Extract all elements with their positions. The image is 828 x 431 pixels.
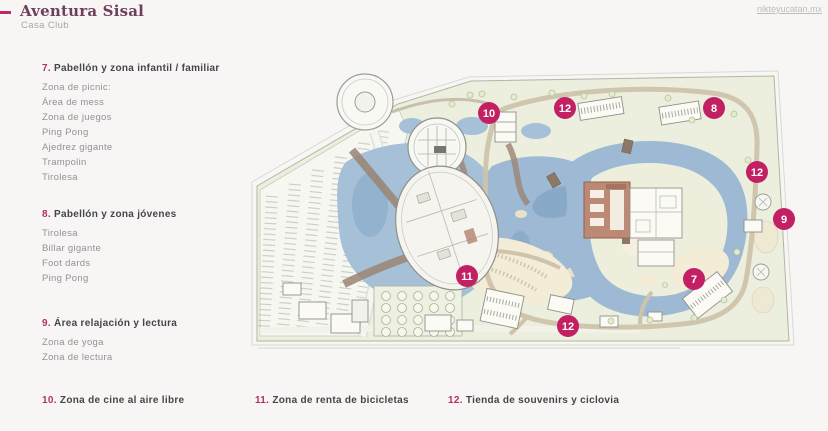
legend-item: Área de mess — [42, 95, 247, 110]
page-subtitle: Casa Club — [21, 20, 69, 31]
svg-text:11: 11 — [461, 271, 473, 283]
map-badge-12-bottom: 12 — [557, 315, 579, 337]
map-badge-12-top: 12 — [554, 97, 576, 119]
legend-item: Zona de lectura — [42, 350, 247, 365]
legend-item: Zona de juegos — [42, 110, 247, 125]
legend-heading: 7. Pabellón y zona infantil / familiar — [42, 63, 247, 74]
legend-heading: 9. Área relajación y lectura — [42, 318, 247, 329]
legend-section-10: 10. Zona de cine al aire libre — [42, 395, 184, 406]
page-title: Aventura Sisal — [20, 2, 144, 20]
legend-item: Ajedrez gigante — [42, 140, 247, 155]
legend-title: Área relajación y lectura — [54, 318, 177, 329]
website-link[interactable]: nikteyucatan.mx — [757, 4, 822, 14]
map-badge-10: 10 — [478, 102, 500, 124]
legend-number: 8. — [42, 209, 51, 220]
svg-text:8: 8 — [711, 103, 717, 115]
legend-number: 7. — [42, 63, 51, 74]
legend-section-7: 7. Pabellón y zona infantil / familiar Z… — [42, 63, 247, 185]
map-badge-11: 11 — [456, 265, 478, 287]
legend-number: 11. — [255, 395, 269, 406]
legend-title: Tienda de souvenirs y ciclovia — [466, 395, 619, 406]
map-badge-8: 8 — [703, 97, 725, 119]
legend-section-11: 11. Zona de renta de bicicletas — [255, 395, 409, 406]
svg-text:10: 10 — [483, 108, 495, 120]
legend-section-9: 9. Área relajación y lectura Zona de yog… — [42, 318, 247, 365]
legend-item: Ping Pong — [42, 271, 247, 286]
legend-section-8: 8. Pabellón y zona jóvenes Tirolesa Bill… — [42, 209, 247, 286]
legend-number: 10. — [42, 395, 57, 406]
legend-item: Zona de picnic: — [42, 80, 247, 95]
legend-item: Tirolesa — [42, 170, 247, 185]
svg-text:12: 12 — [559, 103, 571, 115]
legend-number: 12. — [448, 395, 463, 406]
map-badge-7: 7 — [683, 268, 705, 290]
legend-item: Trampolin — [42, 155, 247, 170]
legend-title: Zona de renta de bicicletas — [272, 395, 408, 406]
roundabout — [337, 74, 393, 130]
legend-heading: 8. Pabellón y zona jóvenes — [42, 209, 247, 220]
svg-text:7: 7 — [691, 274, 697, 286]
legend-item: Tirolesa — [42, 226, 247, 241]
page: Aventura Sisal Casa Club nikteyucatan.mx… — [0, 0, 828, 431]
legend-title: Pabellón y zona jóvenes — [54, 209, 177, 220]
map-badge-9: 9 — [773, 208, 795, 230]
legend-number: 9. — [42, 318, 51, 329]
legend-title: Zona de cine al aire libre — [60, 395, 185, 406]
legend-item: Foot dards — [42, 256, 247, 271]
svg-text:12: 12 — [751, 167, 763, 179]
brand-dash-icon — [0, 11, 11, 14]
svg-text:12: 12 — [562, 321, 574, 333]
legend-item: Zona de yoga — [42, 335, 247, 350]
legend-title: Pabellón y zona infantil / familiar — [54, 63, 220, 74]
legend-item: Ping Pong — [42, 125, 247, 140]
legend-section-12: 12. Tienda de souvenirs y ciclovia — [448, 395, 619, 406]
svg-text:9: 9 — [781, 214, 787, 226]
legend-item: Billar gigante — [42, 241, 247, 256]
map-badge-12-right: 12 — [746, 161, 768, 183]
site-plan-map: 10 12 8 12 9 7 — [240, 55, 800, 355]
